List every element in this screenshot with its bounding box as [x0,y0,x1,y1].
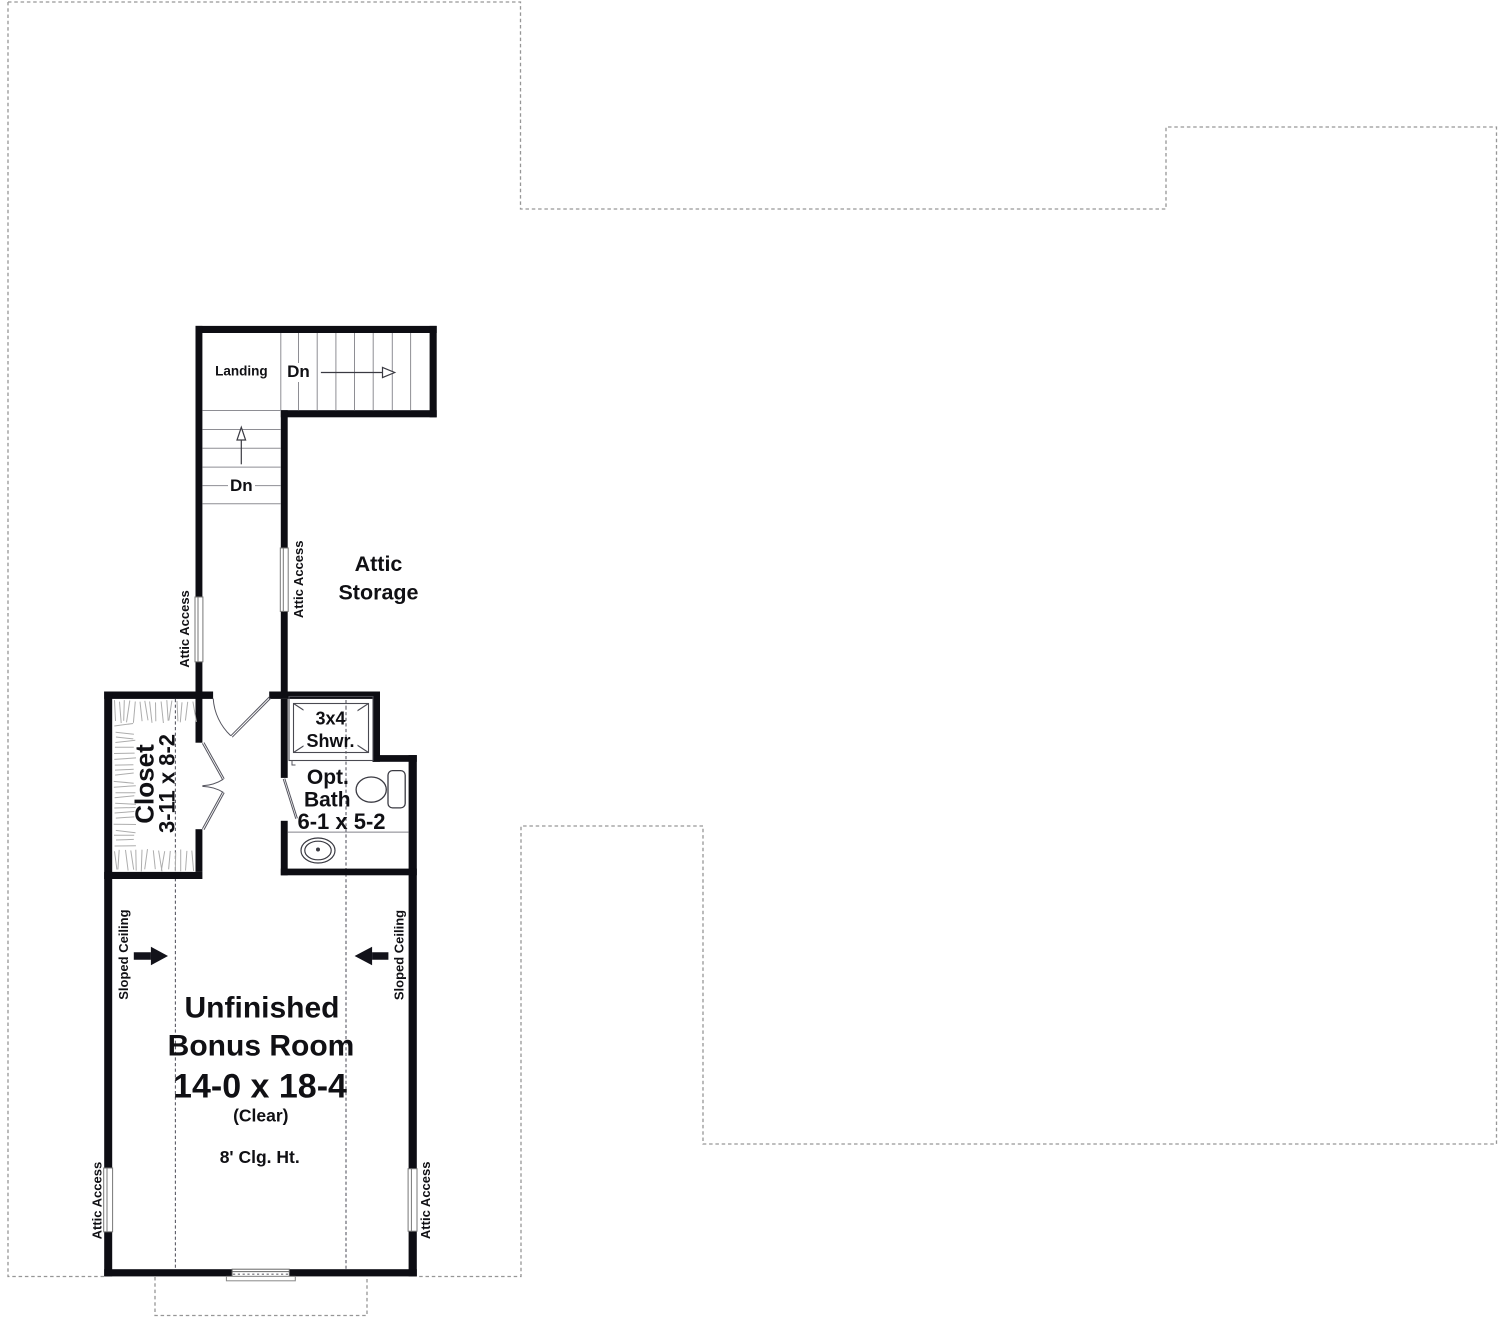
svg-text:3-11 x 8-2: 3-11 x 8-2 [155,734,180,833]
svg-text:Attic Access: Attic Access [90,1162,105,1240]
svg-text:14-0 x 18-4: 14-0 x 18-4 [173,1067,347,1105]
svg-text:Opt.: Opt. [307,766,349,789]
svg-text:Dn: Dn [230,476,253,495]
svg-text:Attic Access: Attic Access [291,541,306,619]
svg-text:Unfinished: Unfinished [185,992,340,1025]
svg-text:3x4: 3x4 [315,709,345,729]
svg-text:(Clear): (Clear) [233,1106,288,1126]
svg-text:Bonus Room: Bonus Room [168,1030,355,1063]
svg-text:Attic Access: Attic Access [418,1162,433,1240]
svg-text:Attic: Attic [355,552,403,576]
svg-text:8' Clg. Ht.: 8' Clg. Ht. [220,1147,300,1167]
svg-text:Storage: Storage [338,581,418,605]
svg-text:Attic Access: Attic Access [177,590,192,668]
svg-text:Sloped Ceiling: Sloped Ceiling [116,909,131,999]
svg-text:Landing: Landing [215,364,268,379]
svg-text:Sloped Ceiling: Sloped Ceiling [392,910,407,1000]
svg-text:Shwr.: Shwr. [306,731,354,751]
svg-text:6-1 x 5-2: 6-1 x 5-2 [297,809,385,834]
svg-text:Dn: Dn [287,362,310,381]
